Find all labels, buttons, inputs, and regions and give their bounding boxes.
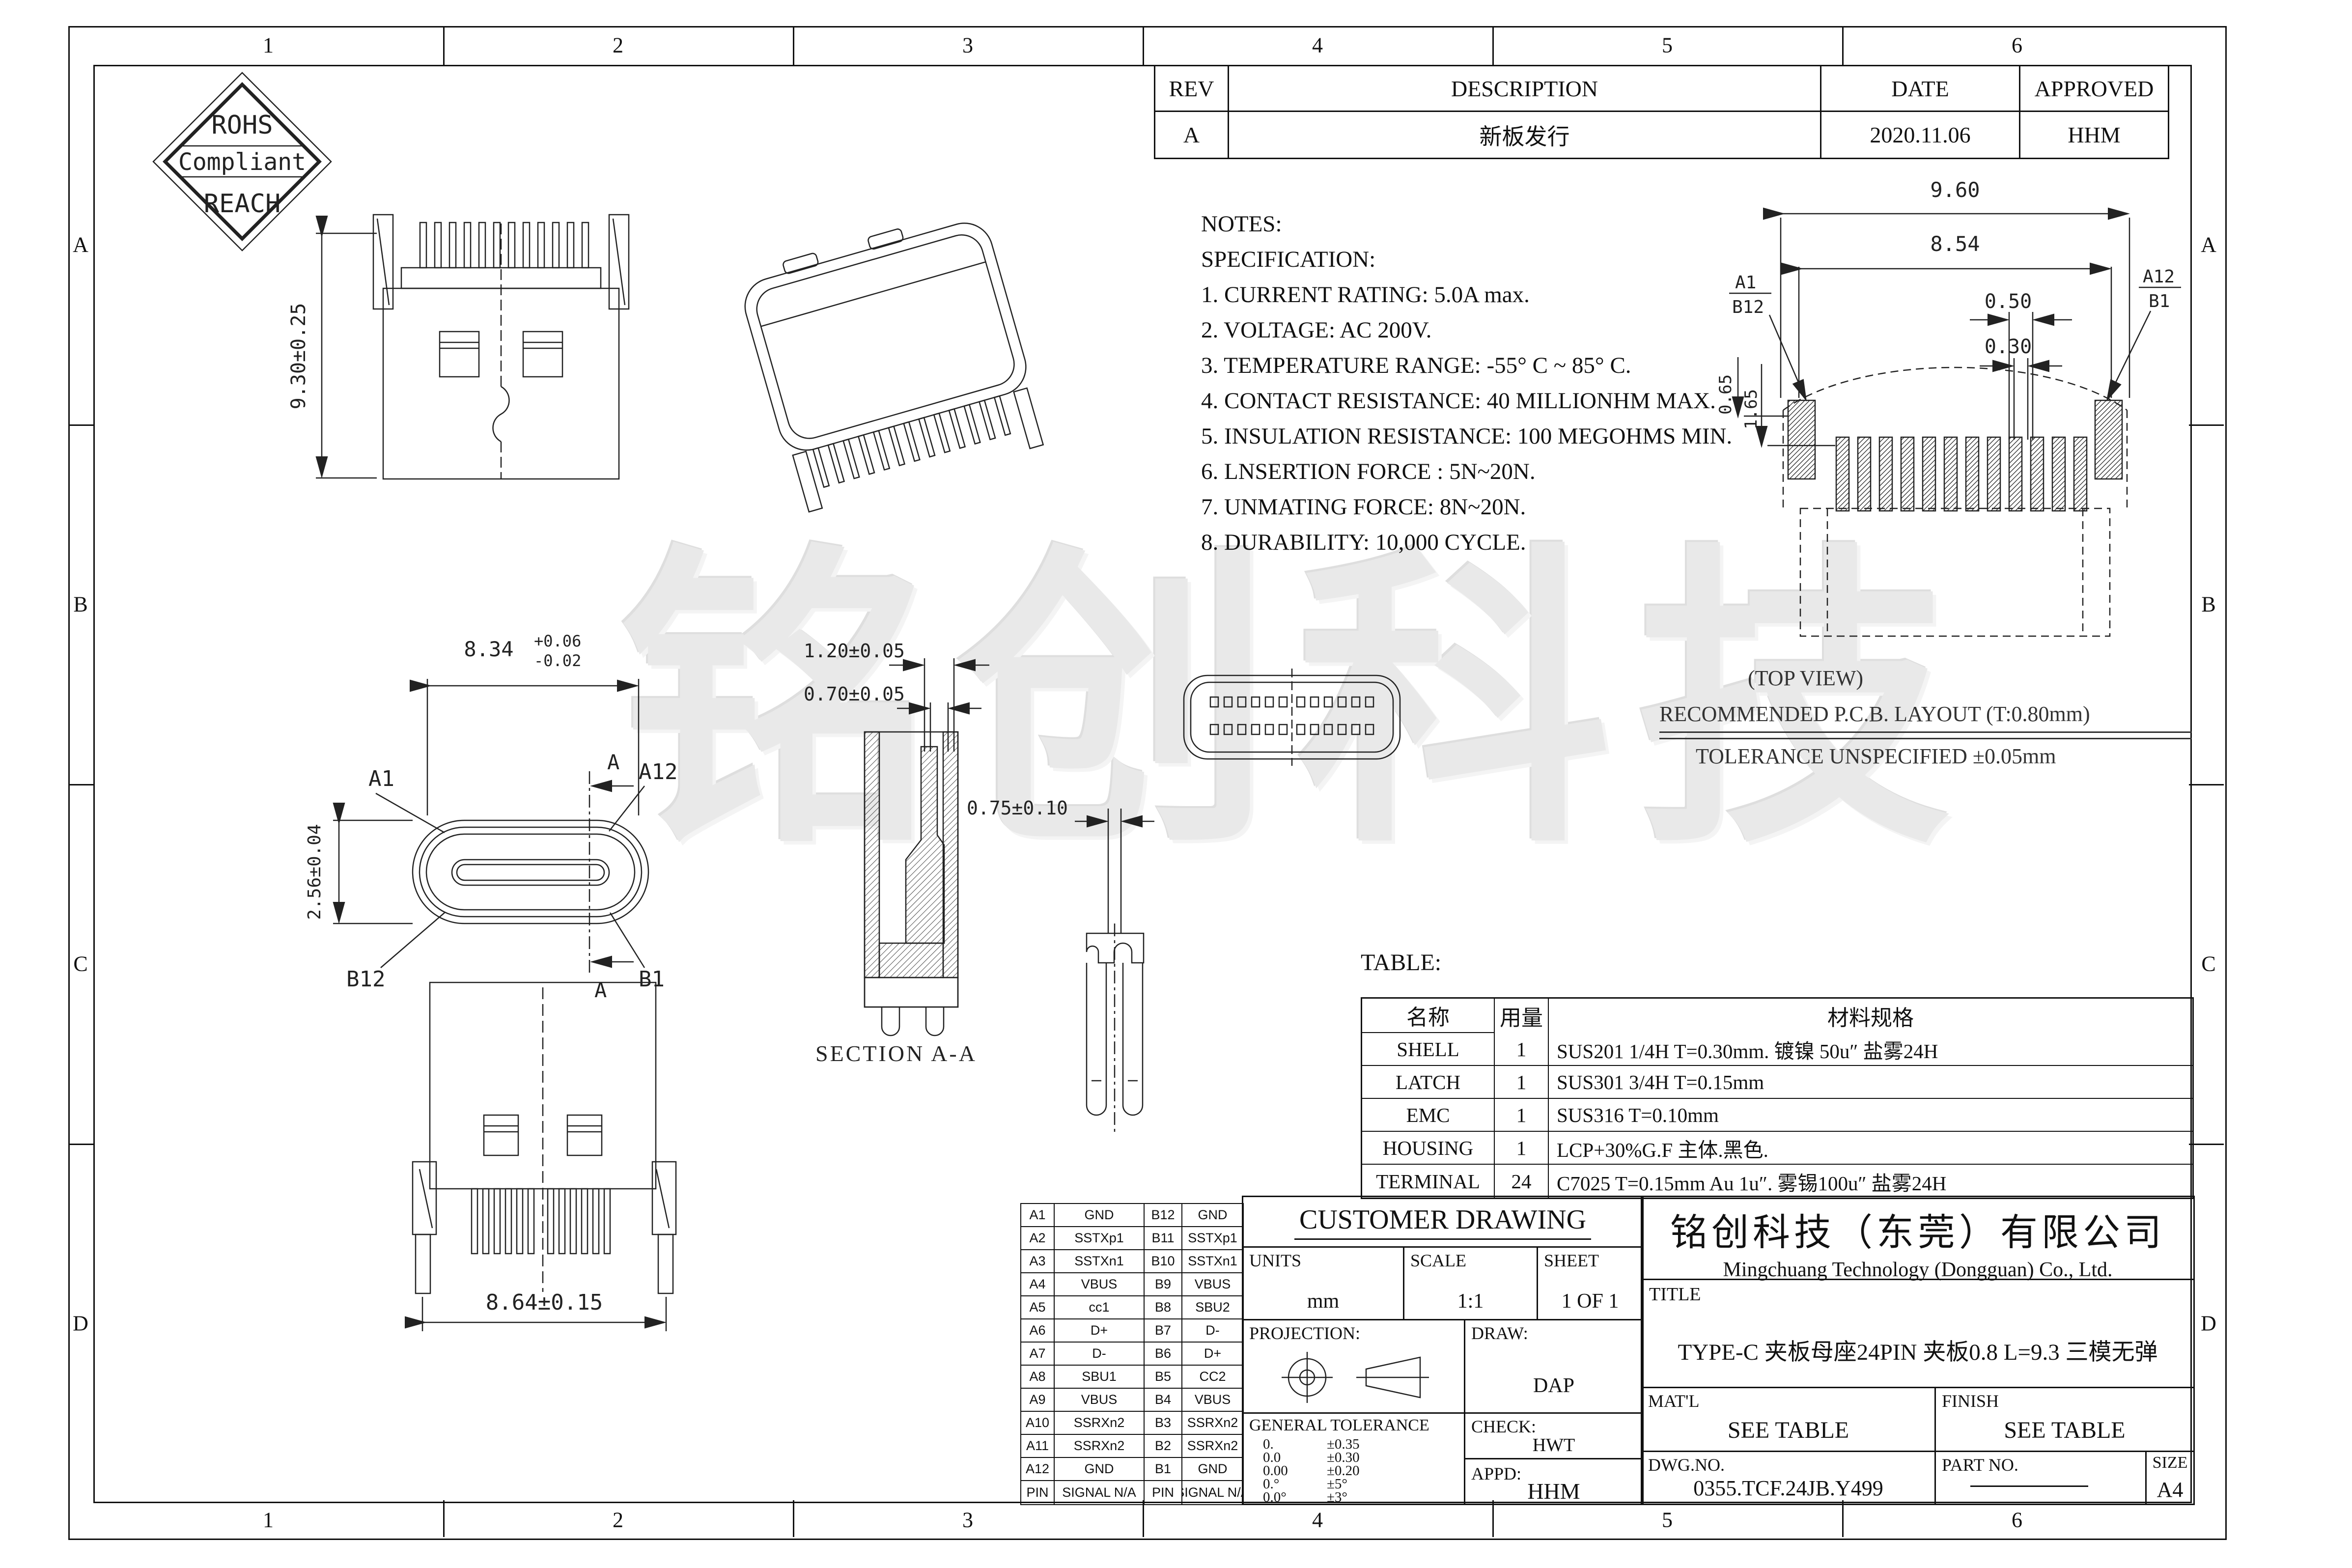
zone-col-label: 4 [1312, 1508, 1323, 1533]
table-cell: B2 [1145, 1435, 1182, 1458]
matl-value: SEE TABLE [1642, 1417, 1934, 1444]
pin-a1-label: A1 [368, 766, 394, 791]
table-cell: 1 [1495, 1066, 1549, 1099]
pcb-dim-pad: 0.30 [1985, 336, 2032, 358]
pcb-dim-width: 9.60 [1930, 178, 1980, 202]
section-dim2: 0.70±0.05 [804, 683, 905, 705]
zone-row-label: D [2201, 1311, 2216, 1336]
table-cell: 1 [1495, 1132, 1549, 1165]
table-cell: VBUS [1182, 1389, 1243, 1412]
pcb-dim-row-offset: 0.65 [1716, 374, 1736, 415]
table-cell: 7. UNMATING FORCE: 8N~20N. [1201, 489, 1732, 525]
table-cell: A5 [1021, 1296, 1055, 1319]
table-cell: VBUS [1055, 1389, 1145, 1412]
table-cell: 4. CONTACT RESISTANCE: 40 MILLIONHM MAX. [1201, 383, 1732, 419]
title-cell: TITLE TYPE-C 夹板母座24PIN 夹板0.8 L=9.3 三模无弹 [1642, 1279, 2193, 1388]
table-cell: LATCH [1362, 1066, 1495, 1099]
table-cell: D+ [1055, 1319, 1145, 1343]
pcb-label-b1: B1 [2149, 291, 2170, 311]
tolerance-note: TOLERANCE UNSPECIFIED ±0.05mm [1696, 744, 2056, 769]
mating-height-dim: 2.56±0.04 [305, 824, 325, 920]
pin-table: A1GNDB12GNDA2SSTXp1B11SSTXp1A3SSTXn1B10S… [1020, 1203, 1244, 1505]
table-cell: B9 [1145, 1273, 1182, 1296]
zone-divider [443, 1500, 445, 1537]
zone-col-label: 1 [263, 1508, 274, 1533]
table-cell: PIN [1145, 1481, 1182, 1504]
table-cell: GND [1182, 1204, 1243, 1227]
table-cell: 0.0° [1263, 1491, 1327, 1504]
notes-subtitle: SPECIFICATION: [1201, 242, 1732, 277]
size-cell: SIZE A4 [2147, 1451, 2193, 1504]
title-block: 铭创科技（东莞）有限公司 Mingchuang Technology (Dong… [1641, 1196, 2195, 1505]
draw-label: DRAW: [1471, 1323, 1528, 1344]
table-cell: A8 [1021, 1366, 1055, 1389]
description-header: DESCRIPTION [1229, 66, 1821, 112]
projection-cell: PROJECTION: [1243, 1319, 1465, 1412]
table-cell: SUS301 3/4H T=0.15mm [1549, 1066, 2192, 1099]
revision-table: REV DESCRIPTION DATE APPROVED A 新板发行 202… [1154, 65, 2169, 159]
table-cell: 0. [1263, 1438, 1327, 1451]
pcb-dim-depth: 1.65 [1741, 389, 1761, 429]
table-cell: VBUS [1055, 1273, 1145, 1296]
table-cell: SBU2 [1182, 1296, 1243, 1319]
table-cell: 24 [1495, 1165, 1549, 1198]
rev-value: A [1155, 112, 1229, 158]
size-label: SIZE [2147, 1454, 2193, 1472]
pcb-label-a12: A12 [2143, 267, 2175, 287]
pcb-label-a1: A1 [1735, 273, 1756, 293]
zone-divider [1842, 26, 1844, 65]
zone-col-label: 4 [1312, 33, 1323, 58]
table-cell: ±0.20 [1327, 1464, 1410, 1478]
check-cell: CHECK: HWT [1465, 1412, 1642, 1458]
table-cell: B5 [1145, 1366, 1182, 1389]
table-cell: 0.00 [1263, 1464, 1327, 1478]
part-no-blank-line [1970, 1485, 2088, 1487]
zone-col-label: 6 [2012, 1508, 2022, 1533]
scale-cell: SCALE 1:1 [1404, 1246, 1538, 1319]
table-cell: SUS201 1/4H T=0.30mm. 镀镍 50u″ 盐雾24H [1549, 1033, 2192, 1066]
terminal-dim: 0.75±0.10 [967, 797, 1068, 819]
isometric-view-drawing [695, 169, 1088, 577]
size-value: A4 [2147, 1477, 2193, 1502]
table-cell: B6 [1145, 1343, 1182, 1366]
notes-block: NOTES: SPECIFICATION: 1. CURRENT RATING:… [1201, 206, 1732, 560]
pcb-dim-pitch: 0.50 [1985, 290, 2032, 313]
materials-table: 名称 用量 材料规格 SHELL1SUS201 1/4H T=0.30mm. 镀… [1361, 997, 2194, 1199]
materials-header-spec: 材料规格 [1549, 999, 2192, 1033]
table-cell: ±5° [1327, 1478, 1410, 1491]
table-cell: A7 [1021, 1343, 1055, 1366]
table-cell: SIGNAL N/A [1055, 1481, 1145, 1504]
rear-width-dim: 8.64±0.15 [486, 1290, 603, 1315]
section-letter-top: A [607, 750, 619, 774]
check-value: HWT [1465, 1434, 1642, 1456]
front-view-drawing: 9.30±0.25 [273, 184, 656, 508]
notes-list: 1. CURRENT RATING: 5.0A max.2. VOLTAGE: … [1201, 277, 1732, 560]
units-value: mm [1243, 1289, 1403, 1313]
zone-row-label: A [2201, 232, 2216, 257]
units-cell: UNITS mm [1243, 1246, 1404, 1319]
dwg-no-label: DWG.NO. [1648, 1455, 1725, 1475]
matl-cell: MAT'L SEE TABLE [1642, 1387, 1936, 1451]
zone-divider [68, 1144, 93, 1145]
rev-header: REV [1155, 66, 1229, 112]
table-cell: A11 [1021, 1435, 1055, 1458]
table-cell: D- [1182, 1319, 1243, 1343]
terminal-side-drawing: 0.75±0.10 [963, 707, 1159, 1140]
projection-symbol-icon [1273, 1350, 1430, 1404]
table-cell: SSRXn2 [1055, 1412, 1145, 1435]
date-value: 2020.11.06 [1821, 112, 2020, 158]
table-cell: HOUSING [1362, 1132, 1495, 1165]
table-cell: B12 [1145, 1204, 1182, 1227]
finish-value: SEE TABLE [1936, 1417, 2193, 1444]
scale-label: SCALE [1410, 1250, 1466, 1271]
table-cell: cc1 [1055, 1296, 1145, 1319]
caption-divider [1659, 731, 2192, 739]
front-pins [420, 223, 588, 268]
finish-cell: FINISH SEE TABLE [1936, 1387, 2193, 1451]
date-header: DATE [1821, 66, 2020, 112]
general-tolerance-label: GENERAL TOLERANCE [1249, 1416, 1429, 1435]
table-cell: LCP+30%G.F 主体.黑色. [1549, 1132, 2192, 1165]
materials-header-name: 名称 [1362, 999, 1495, 1033]
zone-divider [443, 26, 445, 65]
zone-divider [68, 784, 93, 785]
table-cell: 0.° [1263, 1478, 1327, 1491]
pin-a12-label: A12 [639, 759, 677, 784]
table-cell: B4 [1145, 1389, 1182, 1412]
table-cell: SSTXp1 [1055, 1227, 1145, 1250]
section-label: SECTION A-A [815, 1040, 977, 1066]
table-cell: SSTXn1 [1055, 1250, 1145, 1273]
table-cell: B11 [1145, 1227, 1182, 1250]
zone-divider [1143, 1500, 1144, 1537]
table-cell: SBU1 [1055, 1366, 1145, 1389]
customer-drawing-title-text: CUSTOMER DRAWING [1294, 1204, 1591, 1240]
rear-pins [472, 1189, 610, 1254]
company-name-cn: 铭创科技（东莞）有限公司 [1642, 1202, 2193, 1256]
pcb-dim-inner: 8.54 [1930, 232, 1980, 256]
appd-value: HHM [1465, 1478, 1642, 1504]
finish-label: FINISH [1942, 1391, 1999, 1411]
company-cell: 铭创科技（东莞）有限公司 Mingchuang Technology (Dong… [1642, 1197, 2193, 1280]
zone-row-label: C [73, 952, 87, 977]
pcb-layout-title: RECOMMENDED P.C.B. LAYOUT (T:0.80mm) [1659, 701, 2090, 727]
dwg-no-cell: DWG.NO. 0355.TCF.24JB.Y499 [1642, 1451, 1936, 1504]
dwg-no-value: 0355.TCF.24JB.Y499 [1642, 1476, 1934, 1501]
table-cell: B3 [1145, 1412, 1182, 1435]
units-label: UNITS [1249, 1250, 1301, 1271]
table-cell: ±0.35 [1327, 1438, 1410, 1451]
table-cell: 8. DURABILITY: 10,000 CYCLE. [1201, 525, 1732, 560]
table-cell: SSRXn2 [1055, 1435, 1145, 1458]
sheet-cell: SHEET 1 OF 1 [1538, 1246, 1642, 1319]
pin-b12-label: B12 [346, 967, 385, 992]
table-cell: ±0.30 [1327, 1451, 1410, 1464]
table-cell: SSTXp1 [1182, 1227, 1243, 1250]
table-cell: A10 [1021, 1412, 1055, 1435]
table-cell: ±3° [1327, 1491, 1410, 1504]
mating-width-minus: -0.02 [534, 651, 581, 670]
table-cell: PIN [1021, 1481, 1055, 1504]
zone-col-label: 3 [962, 1508, 973, 1533]
table-cell: D+ [1182, 1343, 1243, 1366]
table-cell: GND [1182, 1458, 1243, 1481]
materials-header-qty: 用量 [1495, 999, 1549, 1033]
title-label: TITLE [1649, 1284, 1701, 1305]
check-label: CHECK: [1471, 1416, 1536, 1437]
rear-view-drawing: 8.64±0.15 [383, 953, 707, 1371]
zone-col-label: 3 [962, 33, 973, 58]
table-cell: 1 [1495, 1099, 1549, 1132]
table-cell: CC2 [1182, 1366, 1243, 1389]
zone-divider [1492, 26, 1494, 65]
draw-cell: DRAW: DAP [1465, 1319, 1642, 1412]
zone-divider [2189, 784, 2224, 785]
description-value: 新板发行 [1229, 112, 1821, 158]
tolerance-list: 0.±0.350.0±0.300.00±0.200.°±5°0.0°±3° [1263, 1438, 1410, 1504]
mating-face-drawing: 8.34 +0.06 -0.02 2.56±0.04 A1 A12 B12 B1 [295, 624, 717, 1007]
zone-col-label: 6 [2012, 33, 2022, 58]
table-cell: A1 [1021, 1204, 1055, 1227]
table-cell: 1. CURRENT RATING: 5.0A max. [1201, 277, 1732, 312]
mating-width-plus: +0.06 [534, 632, 581, 650]
table-cell: TERMINAL [1362, 1165, 1495, 1198]
materials-table-label: TABLE: [1361, 949, 1441, 976]
draw-value: DAP [1465, 1374, 1642, 1398]
sheet-label: SHEET [1544, 1250, 1599, 1271]
zone-row-label: B [73, 592, 87, 617]
zone-divider [1143, 26, 1144, 65]
top-plan-drawing [1169, 656, 1415, 779]
notes-title: NOTES: [1201, 206, 1732, 242]
table-cell: SIGNAL N/A [1182, 1481, 1243, 1504]
table-cell: GND [1055, 1204, 1145, 1227]
approved-header: APPROVED [2020, 66, 2168, 112]
part-no-label: PART NO. [1942, 1455, 2018, 1475]
title-value: TYPE-C 夹板母座24PIN 夹板0.8 L=9.3 三模无弹 [1642, 1333, 2193, 1367]
front-height-dim: 9.30±0.25 [287, 303, 310, 410]
projection-label: PROJECTION: [1249, 1323, 1360, 1344]
zone-row-label: D [73, 1311, 88, 1336]
zone-divider [1842, 1500, 1844, 1537]
table-cell: A2 [1021, 1227, 1055, 1250]
table-cell: SHELL [1362, 1033, 1495, 1066]
customer-drawing-title: CUSTOMER DRAWING [1243, 1197, 1642, 1248]
reach-text: REACH [204, 189, 281, 219]
appd-cell: APPD: HHM [1465, 1458, 1642, 1505]
table-cell: 6. LNSERTION FORCE : 5N~20N. [1201, 454, 1732, 489]
section-dim1: 1.20±0.05 [804, 640, 905, 662]
pcb-label-b12: B12 [1732, 297, 1764, 317]
table-cell: B8 [1145, 1296, 1182, 1319]
zone-col-label: 5 [1662, 1508, 1673, 1533]
table-cell: A4 [1021, 1273, 1055, 1296]
top-view-label: (TOP VIEW) [1748, 666, 1863, 691]
company-name-en: Mingchuang Technology (Dongguan) Co., Lt… [1642, 1258, 2193, 1282]
part-no-cell: PART NO. [1936, 1451, 2147, 1504]
matl-label: MAT'L [1648, 1391, 1699, 1411]
pcb-pads [1788, 400, 2122, 511]
table-cell: 5. INSULATION RESISTANCE: 100 MEGOHMS MI… [1201, 419, 1732, 454]
table-cell: A3 [1021, 1250, 1055, 1273]
table-cell: VBUS [1182, 1273, 1243, 1296]
table-cell: A9 [1021, 1389, 1055, 1412]
zone-divider [793, 26, 794, 65]
zone-col-label: 5 [1662, 33, 1673, 58]
table-cell: C7025 T=0.15mm Au 1u″. 雾锡100u″ 盐雾24H [1549, 1165, 2192, 1198]
table-cell: 0.0 [1263, 1451, 1327, 1464]
zone-row-label: B [2201, 592, 2215, 617]
compliant-text: Compliant [178, 148, 306, 176]
mating-width-dim: 8.34 [464, 637, 513, 661]
table-cell: EMC [1362, 1099, 1495, 1132]
zone-col-label: 2 [613, 33, 623, 58]
table-cell: 1 [1495, 1033, 1549, 1066]
table-cell: 3. TEMPERATURE RANGE: -55° C ~ 85° C. [1201, 348, 1732, 383]
sheet-value: 1 OF 1 [1538, 1289, 1642, 1313]
table-cell: B10 [1145, 1250, 1182, 1273]
general-tolerance-cell: GENERAL TOLERANCE 0.±0.350.0±0.300.00±0.… [1243, 1412, 1465, 1504]
table-cell: 2. VOLTAGE: AC 200V. [1201, 312, 1732, 348]
zone-divider [68, 424, 93, 426]
zone-row-label: A [73, 232, 88, 257]
table-cell: D- [1055, 1343, 1145, 1366]
table-cell: SSRXn2 [1182, 1435, 1243, 1458]
customer-drawing-block: CUSTOMER DRAWING UNITS mm SCALE 1:1 SHEE… [1242, 1196, 1644, 1505]
zone-divider [1492, 1500, 1494, 1537]
table-cell: B7 [1145, 1319, 1182, 1343]
zone-divider [793, 1500, 794, 1537]
table-cell: SSRXn2 [1182, 1412, 1243, 1435]
table-cell: GND [1055, 1458, 1145, 1481]
zone-col-label: 1 [263, 33, 274, 58]
zone-row-label: C [2201, 952, 2215, 977]
scale-value: 1:1 [1404, 1289, 1537, 1313]
rohs-text: ROHS [211, 111, 273, 140]
table-cell: SSTXn1 [1182, 1250, 1243, 1273]
zone-divider [2189, 1144, 2224, 1145]
zone-col-label: 2 [613, 1508, 623, 1533]
pcb-layout-drawing: 9.60 8.54 0.50 0.30 A1 B12 A12 B1 0.65 1… [1714, 165, 2196, 656]
table-cell: A6 [1021, 1319, 1055, 1343]
table-cell: B1 [1145, 1458, 1182, 1481]
table-cell: A12 [1021, 1458, 1055, 1481]
approved-value: HHM [2020, 112, 2168, 158]
table-cell: SUS316 T=0.10mm [1549, 1099, 2192, 1132]
